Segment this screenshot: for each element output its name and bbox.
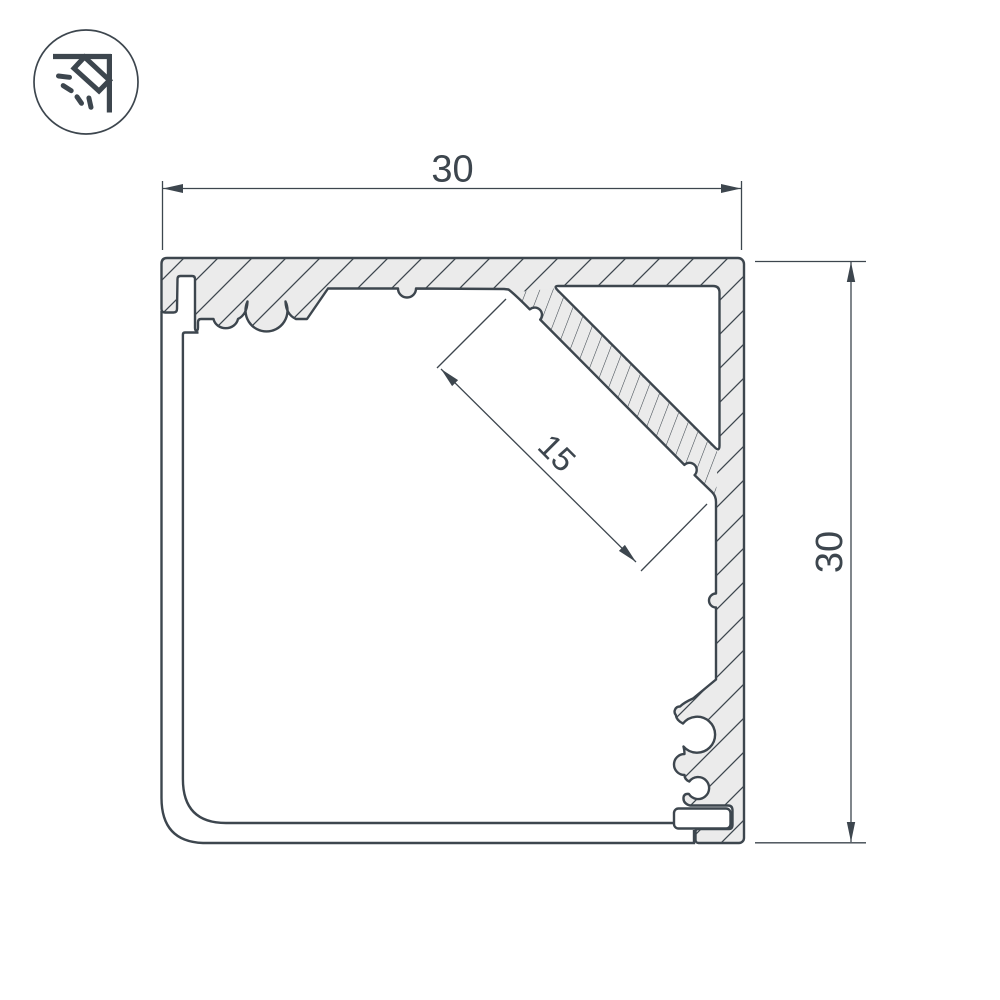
svg-text:30: 30 (809, 531, 851, 573)
svg-text:30: 30 (431, 149, 473, 191)
